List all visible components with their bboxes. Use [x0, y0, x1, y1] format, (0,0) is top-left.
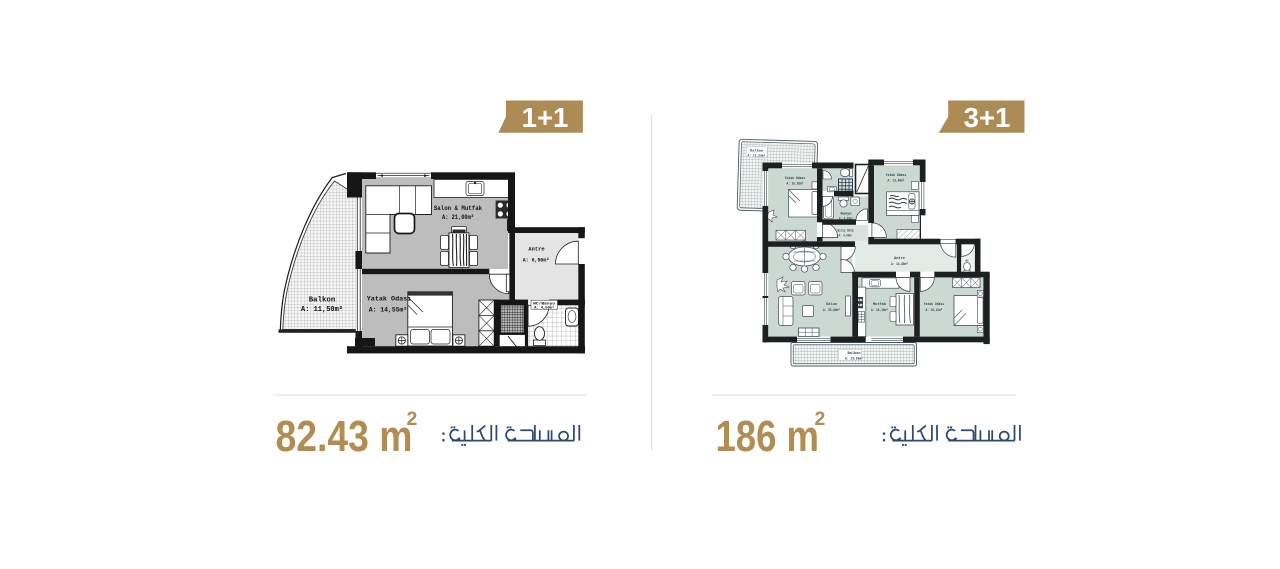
svg-text:Balkon: Balkon — [309, 297, 336, 305]
svg-text:Yatak Odası: Yatak Odası — [785, 176, 806, 181]
svg-text:Yatak Odası: Yatak Odası — [886, 173, 907, 178]
svg-text:A: 33,80m²: A: 33,80m² — [823, 308, 840, 313]
svg-text:Balkon: Balkon — [848, 351, 861, 356]
svg-text:A: 14,55m²: A: 14,55m² — [369, 307, 408, 314]
svg-text:Giriş Holü: Giriş Holü — [838, 229, 854, 234]
svg-text:A: 11,29m²: A: 11,29m² — [747, 153, 765, 159]
svg-text:Antre: Antre — [528, 247, 544, 253]
svg-text:Salon: Salon — [826, 302, 837, 307]
svg-text:A: 18,15m²: A: 18,15m² — [926, 308, 943, 313]
svg-text:Banyo: Banyo — [841, 213, 852, 217]
svg-text:Balkon: Balkon — [750, 148, 763, 153]
svg-text:3+1: 3+1 — [964, 102, 1011, 133]
svg-text:A: 4,50m²: A: 4,50m² — [534, 306, 554, 311]
svg-text:A: 21,00m²: A: 21,00m² — [442, 214, 474, 221]
svg-text:A: 16,25m²: A: 16,25m² — [787, 182, 804, 187]
svg-text:A: 4,00m²: A: 4,00m² — [839, 234, 853, 239]
svg-text:A: 19,65m²: A: 19,65m² — [845, 357, 863, 362]
svg-text:2: 2 — [407, 408, 418, 430]
svg-text:Antre: Antre — [894, 256, 905, 261]
svg-text:Yatak Odası: Yatak Odası — [924, 302, 945, 307]
svg-text:2: 2 — [815, 408, 826, 430]
svg-text:1+1: 1+1 — [522, 102, 569, 133]
svg-text:186 m: 186 m — [716, 412, 820, 461]
svg-text:A: 4,20m²: A: 4,20m² — [839, 216, 853, 221]
svg-text:A: 13,80m²: A: 13,80m² — [891, 262, 908, 267]
svg-text:82.43 m: 82.43 m — [276, 412, 413, 461]
svg-text:WC/Banyo: WC/Banyo — [533, 301, 556, 306]
svg-text:Yatak Odası: Yatak Odası — [367, 296, 412, 303]
svg-text:Salon & Mutfak: Salon & Mutfak — [434, 205, 483, 212]
svg-text:WC: WC — [965, 260, 969, 263]
svg-text:A: 11,50m²: A: 11,50m² — [301, 306, 343, 314]
svg-text:A: 14,10m²: A: 14,10m² — [871, 308, 888, 313]
svg-text:A: 13,60m²: A: 13,60m² — [888, 179, 905, 184]
svg-text:Mutfak: Mutfak — [873, 302, 887, 307]
svg-text:A: 6,50m²: A: 6,50m² — [523, 257, 549, 264]
